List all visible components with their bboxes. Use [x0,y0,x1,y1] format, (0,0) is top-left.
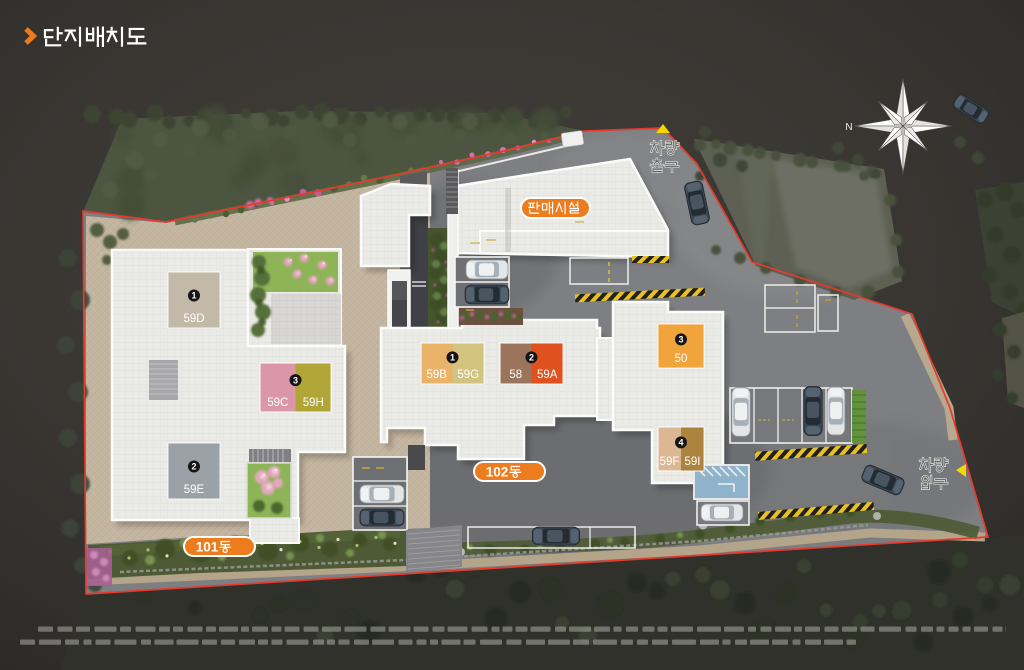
svg-text:N: N [845,122,852,133]
svg-text:59B: 59B [427,369,448,381]
svg-text:59G: 59G [457,369,479,381]
svg-text:59E: 59E [184,484,205,496]
svg-text:101: 101 [196,540,219,555]
svg-text:1: 1 [191,291,196,301]
svg-text:2: 2 [529,353,534,363]
svg-text:59C: 59C [267,397,288,409]
svg-text:59A: 59A [537,369,558,381]
svg-text:58: 58 [509,369,522,381]
svg-text:3: 3 [293,375,298,385]
svg-text:59F: 59F [660,456,680,468]
svg-text:4: 4 [678,438,683,448]
svg-text:2: 2 [191,462,196,472]
svg-text:1: 1 [450,353,455,363]
svg-text:59I: 59I [685,456,701,468]
svg-text:59H: 59H [303,397,324,409]
svg-text:3: 3 [678,335,683,345]
svg-text:59D: 59D [183,313,204,325]
svg-text:102: 102 [486,465,509,480]
svg-text:50: 50 [675,353,688,365]
